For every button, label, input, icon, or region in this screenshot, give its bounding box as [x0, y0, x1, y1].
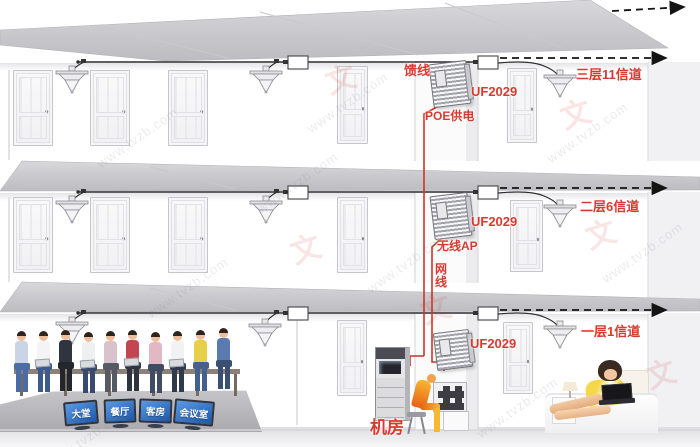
building-coverage-diagram: www.tvzb.com www.tvzb.com www.tvzb.com w…: [0, 0, 700, 447]
wireless-ap-label: 无线AP: [437, 240, 478, 253]
seated-person: [146, 331, 166, 395]
seated-person: [214, 327, 234, 391]
uf2029-device-floor2: [429, 192, 472, 240]
lobby-screen-label: 大堂: [71, 405, 91, 421]
lobby-screen: 餐厅: [104, 398, 137, 423]
seated-person: [168, 330, 188, 394]
lobby-screen: 大堂: [63, 400, 99, 427]
uf2029-label-floor1: UF2029: [470, 337, 516, 351]
roof-slab: [0, 0, 668, 61]
console-pedestal: [443, 411, 469, 431]
seated-person: [34, 330, 54, 394]
channel-label-floor3: 三层11信道: [576, 68, 642, 82]
poe-label: POE供电: [425, 110, 474, 123]
uf2029-label-floor2: UF2029: [471, 215, 517, 229]
operator-head: [427, 374, 436, 383]
network-cable-label: 网线: [435, 263, 450, 288]
lamp-stem: [569, 391, 571, 398]
seated-person: [56, 329, 76, 393]
channel-label-floor2: 二层6信道: [580, 200, 639, 214]
floor2-slab: [0, 282, 700, 312]
seated-person: [79, 331, 99, 395]
lobby-screen-label: 餐厅: [110, 404, 129, 419]
seated-person: [123, 329, 143, 393]
machine-room-label: 机房: [370, 419, 404, 437]
lamp-icon: [562, 382, 578, 391]
woman-face: [604, 369, 617, 380]
stool: [407, 412, 426, 417]
server-rack: [375, 347, 410, 421]
uf2029-device-floor1: [433, 329, 473, 371]
lobby-screen-label: 会议室: [179, 404, 209, 420]
lobby-screen-label: 客房: [146, 404, 165, 419]
seated-person: [101, 330, 121, 394]
channel-label-floor1: 一层1信道: [581, 325, 640, 339]
uf2029-label-floor3: UF2029: [471, 85, 517, 99]
lobby-screen: 会议室: [173, 398, 215, 426]
seated-person: [12, 330, 32, 394]
uf2029-device-floor3: [428, 60, 471, 108]
lobby-screen: 客房: [139, 398, 173, 423]
feeder-label: 馈线: [404, 64, 430, 78]
seated-person: [191, 329, 211, 393]
operator-shin: [434, 408, 440, 432]
